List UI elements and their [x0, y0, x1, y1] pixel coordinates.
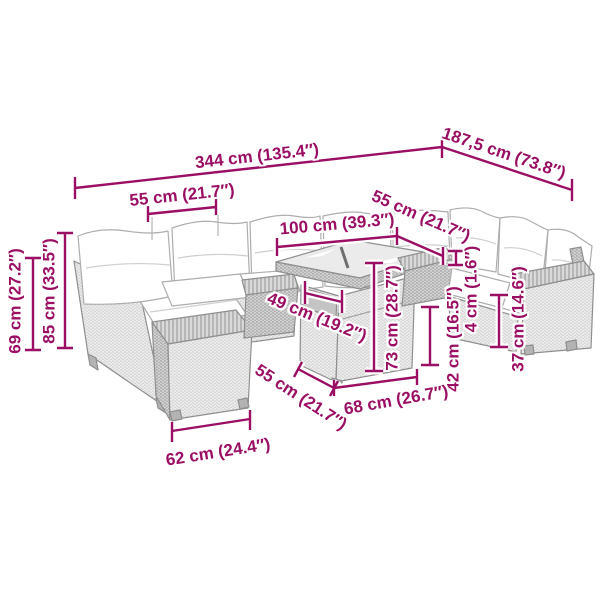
dim-label-69: 69 cm (27.2″): [7, 248, 24, 353]
dimension-diagram: 344 cm (135.4″) 187,5 cm (73.8″) 55 cm (…: [0, 0, 600, 600]
dim-label-42: 42 cm (16.5″): [445, 286, 462, 391]
dim-label-85: 85 cm (33.5″): [41, 238, 58, 343]
dim-label-37: 37 cm (14.6″): [510, 266, 527, 371]
dim-line-42: [421, 307, 439, 365]
dim-line-85: [57, 233, 73, 348]
dim-label-73: 73 cm (28.7″): [384, 265, 401, 370]
dim-label-4: 4 cm (1.6″): [463, 246, 480, 333]
